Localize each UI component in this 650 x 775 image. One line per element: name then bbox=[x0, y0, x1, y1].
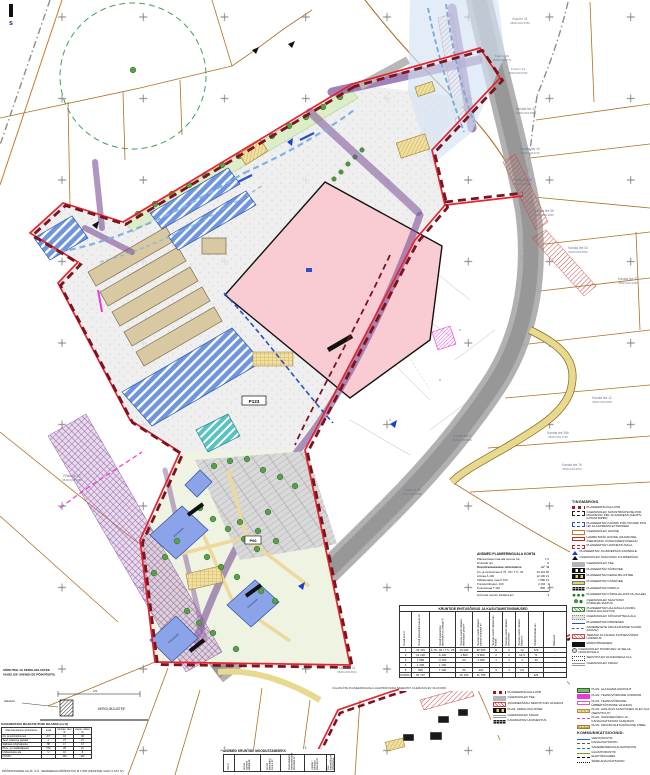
legend-item: OLEMASOLEV PUURKAEV JA SELLE HOOLDUSALA bbox=[572, 648, 650, 655]
yzebra-swatch-icon bbox=[572, 574, 585, 579]
table-row: KOKKU56 73715 10041 755226 bbox=[400, 673, 567, 678]
table-cell bbox=[544, 673, 567, 678]
legend-item-label: PLANEERITAV SÕIDUTEE bbox=[587, 568, 623, 571]
bwave-swatch-icon bbox=[572, 628, 585, 630]
svg-text:35201:004:0013: 35201:004:0013 bbox=[562, 467, 582, 471]
lv-swatch-icon bbox=[577, 739, 590, 740]
legend-item-label: MÜRATÕKKESEIN bbox=[587, 642, 613, 645]
yzebra-swatch-icon bbox=[493, 708, 506, 713]
svg-text:35201:004:0025: 35201:004:0025 bbox=[534, 213, 554, 217]
legend-items-2: PLAN. ALAJAAMA ASUKOHTPLAN. TEHNOVÕRKUDE… bbox=[575, 688, 650, 729]
legend-item: SADEMEVEEKANALISATSIOON bbox=[577, 746, 650, 749]
legend-item-label: PLAN. KRUNDI EHITUSÕIGUSE TABEL bbox=[592, 724, 647, 727]
svg-text:35201:004:0065: 35201:004:0065 bbox=[592, 400, 612, 404]
legend-item: OLEMASOLEV KÕVAKATTEGA ALA bbox=[572, 615, 650, 620]
legend-item: OLEMASOLEV SÄILITATAV KÕRGHALJASTUS bbox=[572, 599, 650, 606]
gbar-swatch-icon bbox=[493, 696, 506, 701]
legend-item-label: PLANEERITAV KERGLIIKLUSTEE bbox=[587, 574, 634, 577]
legend-item-label: OLEMASOLEV KRAAV bbox=[508, 714, 539, 717]
svg-text:35201:004:0054: 35201:004:0054 bbox=[452, 438, 472, 442]
communications-items: VEETORUSTIKKANALISATSIOONSADEMEVEEKANALI… bbox=[575, 737, 650, 764]
mrect-swatch-icon bbox=[577, 694, 590, 699]
legend-item-label: PLANEERINGUALA PIIR bbox=[587, 506, 621, 509]
table-cell: Tootmismaa T 100 bbox=[477, 586, 534, 590]
gbar-swatch-icon bbox=[572, 562, 585, 567]
dotr-swatch-icon bbox=[572, 656, 585, 661]
legend-item: OLEMASOLEV HOONE bbox=[572, 530, 650, 535]
svg-text:35201:001:0790: 35201:001:0790 bbox=[510, 21, 530, 25]
legend-item: SADEMEVETE ÄRAJUHTIMISE SUUND (KRAAV) bbox=[572, 626, 650, 633]
rrect-swatch-icon bbox=[572, 537, 585, 542]
svg-text:35201:004:0695: 35201:004:0695 bbox=[516, 111, 536, 115]
legend-item-label: PLAN. ÜHISVEEVÄRGI JA -KANALISATSIOONI Ü… bbox=[592, 716, 650, 723]
balance-title: KAVANDATAVA MAAKASUTUSE BILANSS (ca %) bbox=[1, 722, 152, 726]
legend-item-label: PLANEERITAV PIIRDEAED bbox=[587, 621, 624, 624]
summary-note: Korruste suurim lubatud arv3 bbox=[477, 591, 549, 597]
svg-text:Kanala tee 36: Kanala tee 36 bbox=[534, 209, 554, 213]
table-cell: 15 100 bbox=[456, 673, 473, 678]
mini-legend-panel: TINGMÄRGID PLANEERINGUALA PIIROLEMASOLEV… bbox=[491, 685, 565, 735]
legend-item: PLANEERINGUALA PIIR bbox=[493, 691, 565, 695]
svg-text:Kanala tee 42: Kanala tee 42 bbox=[516, 107, 536, 111]
legend-item: LAMMUTATAV HOONE (VAJADUSEL ASENDATAV UU… bbox=[572, 536, 650, 543]
legend-item-label: PLAN. TEHNOVÕRKUDE KORIDOR bbox=[592, 694, 642, 697]
svg-text:35201:001:0771: 35201:001:0771 bbox=[493, 58, 512, 62]
lk-swatch-icon bbox=[577, 743, 590, 744]
svg-text:35201:004:0640: 35201:004:0640 bbox=[568, 250, 588, 254]
legend-item-label: PLANEERITAV PARKLA bbox=[587, 587, 620, 590]
legend-item-label: OLEMASOLEV SÄILITATAV JUURDEPÄÄS bbox=[580, 556, 638, 559]
footer-note: MÕÕDISTAMISE ALUS: O.Ü. GEODEESIA MÕÕDIS… bbox=[2, 769, 124, 773]
table-cell: Ä 75...95 / T 5...25 bbox=[430, 648, 456, 653]
legend-item: PLANEERITAV HALJASALA (MURU, MADALHALJAS… bbox=[572, 607, 650, 614]
svg-text:Kanala tee 3: Kanala tee 3 bbox=[453, 434, 471, 438]
table-cell: 100 bbox=[74, 754, 92, 758]
ls-swatch-icon bbox=[577, 762, 590, 763]
table-cell bbox=[503, 673, 516, 678]
table-row: KOKKU100100 bbox=[2, 754, 92, 758]
building-rights-table-panel: KRUNTIDE EHITUSÕIGUS JA KASUTAMISTINGIMU… bbox=[399, 605, 567, 691]
legend-item-label: OLEMASOLEV KRAAV bbox=[587, 662, 618, 665]
gear-swatch-icon bbox=[572, 648, 577, 653]
legend-item: TEEMAA JA TÄNAVA KAITSEVÖÖNDI LAIENDUS bbox=[572, 634, 650, 641]
table-cell: KOKKU bbox=[400, 673, 412, 678]
pgrid-swatch-icon bbox=[493, 720, 506, 725]
redbr-swatch-icon bbox=[493, 691, 506, 695]
table-cell: KOKKU bbox=[2, 754, 42, 758]
legend-item-label: LAMMUTATAV HOONE (VAJADUSEL ASENDATAV UU… bbox=[587, 536, 650, 543]
svg-text:Kuuli tn 46: Kuuli tn 46 bbox=[495, 54, 510, 58]
legend-item: PLAN. AVALIKUS KASUTUSES OLEV ALA (SERVI… bbox=[577, 708, 650, 715]
svg-text:35201:004:1350: 35201:004:1350 bbox=[618, 281, 638, 285]
legend-item: MÜRATÕKKESEIN bbox=[572, 642, 650, 647]
svg-text:35201:004:0950: 35201:004:0950 bbox=[402, 492, 422, 496]
legend-item: SERVITUUDI VAJADUSEGA ALA bbox=[572, 656, 650, 661]
legend-item-label: SADEMEVEEKANALISATSIOON bbox=[592, 746, 637, 749]
detail-plan-sheet: s SÕIDUTEE JA KERGLIIKLUSTEE VAHELISE ÜH… bbox=[0, 0, 650, 775]
svg-text:P66: P66 bbox=[249, 538, 257, 543]
svg-text:Laane tn 24: Laane tn 24 bbox=[404, 488, 421, 492]
trees-swatch-icon bbox=[572, 593, 585, 598]
legend-item: OLEMASOLEV SÄILITATAV JUURDEPÄÄS bbox=[572, 556, 650, 560]
mini-legend-items: PLANEERINGUALA PIIROLEMASOLEV TEEJUURDEP… bbox=[491, 691, 565, 725]
building-rights-table: Krundi pos nr Krundi planeeritud suurus … bbox=[399, 611, 567, 678]
legend-item: PLANEERITAV JUURDEPÄÄS KRUNDILE bbox=[572, 550, 650, 554]
legend-item: KAVANDATAV HOONESTUS bbox=[493, 719, 565, 724]
legend-item: PLAN. KRUNDI EHITUSÕIGUSE TABEL bbox=[577, 724, 650, 729]
legend-item-label: OLEMASOLEV KÕVAKATTEGA ALA bbox=[587, 615, 636, 618]
kbar-swatch-icon bbox=[572, 642, 585, 647]
legend-item: PLANEERITAV SÕIDUTEE bbox=[572, 568, 650, 573]
legend-item: PLANEERITAV HOONESTUSALA bbox=[572, 544, 650, 549]
legend-item-label: PLANEERITAV KÕRGHALJASTUS (ALLEE) bbox=[587, 593, 646, 596]
plot-formation-title: ANDMED KRUNTIDE MOODUSTAMISEKS bbox=[223, 749, 335, 753]
building-rights-mini-table bbox=[253, 352, 293, 366]
legend-title: TINGMÄRGID bbox=[572, 500, 650, 504]
svg-text:35201:004:1280: 35201:004:1280 bbox=[62, 478, 82, 482]
legend-item: PLANEERINGUALA PIIR bbox=[572, 506, 650, 510]
svg-text:Kuuli tn 44: Kuuli tn 44 bbox=[511, 67, 526, 71]
legend-item-label: OLEMASOLEV KATASTRIÜKSUSE PIIR, MUUDETAV… bbox=[587, 511, 650, 521]
orect-swatch-icon bbox=[572, 530, 585, 535]
legend-item: PLANEERITAV KRUNDI PIIR, KRUNDI POS NR J… bbox=[572, 522, 650, 529]
legend-item-label: PLANEERITAV HALJASALA (MURU, MADALHALJAS… bbox=[587, 607, 650, 614]
legend-panel-2: PLAN. ALAJAAMA ASUKOHTPLAN. TEHNOVÕRKUDE… bbox=[553, 688, 650, 773]
svg-text:P123: P123 bbox=[249, 399, 260, 404]
tgrid-swatch-icon bbox=[577, 725, 590, 730]
mdash-swatch-icon bbox=[577, 718, 590, 719]
balance-table: Maa kasutamise sihtotstarve kood olemas-… bbox=[1, 727, 92, 759]
table-cell: 226 bbox=[529, 673, 544, 678]
legend-item-label: OLEMASOLEV HOONE bbox=[587, 530, 619, 533]
legend-item: PLANEERITAV KÕNNITEE bbox=[572, 580, 650, 585]
table-cell bbox=[430, 673, 456, 678]
legend-item-label: PLANEERITAV KÕNNITEE bbox=[587, 580, 623, 583]
rdash-swatch-icon bbox=[572, 545, 585, 550]
svg-text:Kanala tee 34: Kanala tee 34 bbox=[568, 246, 588, 250]
summary-subheader: Krundi kasutamise sihtotstarvem² % bbox=[477, 565, 549, 569]
pout-swatch-icon bbox=[577, 701, 590, 706]
corner-mark: s bbox=[9, 4, 13, 27]
legend-item-label: PLAN. KERGLIIKLUSTEE bbox=[508, 708, 543, 711]
legend-item-label: KAVANDATAV HOONESTUS bbox=[508, 719, 547, 722]
svg-text:35201:004:0710: 35201:004:0710 bbox=[520, 151, 540, 155]
ybar-swatch-icon bbox=[572, 581, 585, 586]
rhatch-swatch-icon bbox=[572, 634, 585, 639]
legend-item-label: OLEMASOLEV TEE bbox=[508, 696, 535, 699]
plan-summary-panel: ANDMED PLANEERINGUALA KOHTA Planeeritava… bbox=[477, 552, 549, 608]
legend-item: OLEMASOLEV TEE bbox=[493, 696, 565, 701]
legend-item: PLAN. TEHNOVÕRKUDE ÜMBERTÕSTMISE VAJADUS bbox=[577, 700, 650, 707]
btri-swatch-icon bbox=[572, 551, 578, 555]
svg-text:s: s bbox=[9, 20, 13, 27]
svg-text:Kanala tee 40: Kanala tee 40 bbox=[520, 147, 540, 151]
lel-swatch-icon bbox=[577, 757, 590, 758]
legend-item-label: SIDEKANALISATSIOON bbox=[592, 760, 625, 763]
table-header-row: Maa kasutamise sihtotstarve kood olemas-… bbox=[2, 727, 92, 734]
legend-item: PLAN. KERGLIIKLUSTEE bbox=[493, 708, 565, 713]
gpair-swatch-icon bbox=[493, 715, 506, 718]
legend-item: PLAN. ÜHISVEEVÄRGI JA -KANALISATSIOONI Ü… bbox=[577, 716, 650, 723]
legend-item: PLANEERITAV PARKLA bbox=[572, 587, 650, 592]
table-cell: 56 737 bbox=[412, 673, 430, 678]
legend-item: PLANEERITAV PIIRDEAED bbox=[572, 621, 650, 624]
table-cell: 2 bbox=[545, 586, 549, 590]
table-cell bbox=[42, 754, 56, 758]
pgrid-swatch-icon bbox=[572, 587, 585, 592]
svg-text:Kanala tee 7b: Kanala tee 7b bbox=[562, 463, 582, 467]
bdash-swatch-icon bbox=[572, 511, 585, 516]
table-row: Tootmismaa T 1008952 bbox=[477, 586, 549, 590]
legend-item: OLEMASOLEV KRAAV bbox=[572, 662, 650, 666]
svg-text:Kanala tee 12: Kanala tee 12 bbox=[592, 396, 612, 400]
svg-text:Piilaku tn 22: Piilaku tn 22 bbox=[63, 474, 81, 478]
legend-item: OLEMASOLEV TEE bbox=[572, 562, 650, 567]
table-cell: 895 bbox=[534, 586, 545, 590]
svg-text:Kanala tee 38: Kanala tee 38 bbox=[512, 178, 532, 182]
summary-title: ANDMED PLANEERINGUALA KOHTA bbox=[477, 552, 549, 556]
legend-item-label: PLANEERITAV HOONESTUSALA bbox=[587, 544, 633, 547]
zebra-swatch-icon bbox=[572, 568, 585, 573]
table-header-row: Krundi pos nr Krundi planeeritud suurus … bbox=[400, 612, 567, 648]
lg-swatch-icon bbox=[577, 753, 590, 754]
legend-item-label: PLAN. AVALIKUS KASUTUSES OLEV ALA (SERVI… bbox=[592, 708, 650, 715]
svg-text:Kuuli tn 41: Kuuli tn 41 bbox=[512, 17, 527, 21]
communications-title: KOMMUNIKATSIOONID: bbox=[577, 731, 650, 735]
grect-swatch-icon bbox=[577, 688, 590, 693]
svg-text:Laane tn 11: Laane tn 11 bbox=[339, 666, 356, 670]
svg-text:Kanala tee 26b: Kanala tee 26b bbox=[547, 431, 569, 435]
lsv-swatch-icon bbox=[577, 748, 590, 749]
svg-text:Kanala tee 32: Kanala tee 32 bbox=[618, 277, 638, 281]
legend-item-label: SADEMEVETE ÄRAJUHTIMISE SUUND (KRAAV) bbox=[587, 626, 650, 633]
plot-formation-table: Pos nr Krundi aadressi ettepanek Krundi … bbox=[223, 754, 335, 772]
table-cell: 41 755 bbox=[473, 673, 490, 678]
legend-item: OLEMASOLEV KATASTRIÜKSUSE PIIR, MUUDETAV… bbox=[572, 511, 650, 521]
legend-item-label: PLAN. TEHNOVÕRKUDE ÜMBERTÕSTMISE VAJADUS bbox=[592, 700, 650, 707]
svg-text:35201:004:1760: 35201:004:1760 bbox=[548, 435, 568, 439]
summary-uses-table: Äri- ja tootmismaa Ä 75...95 / T 5...253… bbox=[477, 570, 549, 590]
ghatch-swatch-icon bbox=[572, 607, 585, 612]
table-cell: 100 bbox=[56, 754, 74, 758]
legend-item-label: SERVITUUDI VAJADUSEGA ALA bbox=[587, 656, 632, 659]
legend-item: SIDEKANALISATSIOON bbox=[577, 760, 650, 763]
table-cell bbox=[490, 673, 503, 678]
legend-item-label: OLEMASOLEV SÄILITATAV KÕRGHALJASTUS bbox=[587, 599, 650, 606]
table-cell bbox=[516, 673, 529, 678]
legend-items: PLANEERINGUALA PIIROLEMASOLEV KATASTRIÜK… bbox=[570, 506, 650, 666]
legend-item: JUURDEPÄÄSU SERVITUUDI VAJADUS bbox=[493, 702, 565, 707]
table-header-row: Pos nr Krundi aadressi ettepanek Krundi … bbox=[224, 754, 335, 771]
bludash-swatch-icon bbox=[572, 522, 585, 527]
redbr-swatch-icon bbox=[572, 506, 585, 510]
tclu-swatch-icon bbox=[572, 599, 585, 604]
legend-item-label: PLAN. ALAJAAMA ASUKOHT bbox=[592, 688, 632, 691]
thatch-swatch-icon bbox=[577, 709, 590, 714]
ktri-swatch-icon bbox=[572, 556, 578, 560]
land-use-balance-panel: KAVANDATAVA MAAKASUTUSE BILANSS (ca %) M… bbox=[0, 660, 152, 775]
svg-text:35201:004:0001: 35201:004:0001 bbox=[337, 670, 357, 674]
gpair-swatch-icon bbox=[572, 663, 585, 666]
legend-item-label: JUURDEPÄÄSU SERVITUUDI VAJADUS bbox=[508, 702, 564, 705]
legend-item-label: PLANEERITAV KRUNDI PIIR, KRUNDI POS NR J… bbox=[587, 522, 650, 529]
legend-item-label: OLEMASOLEV TEE bbox=[587, 562, 614, 565]
gdots-swatch-icon bbox=[572, 615, 585, 620]
legend-item: PLANEERITAV KÕRGHALJASTUS (ALLEE) bbox=[572, 593, 650, 598]
fragment-caption: VÄLJAVÕTE PLANEERINGUALA LÄHIPIIRKONNA S… bbox=[332, 686, 446, 690]
bline-swatch-icon bbox=[572, 623, 585, 625]
svg-text:35201:004:1550: 35201:004:1550 bbox=[512, 182, 532, 186]
legend-item-label: OLEMASOLEV PUURKAEV JA SELLE HOOLDUSALA bbox=[579, 648, 650, 655]
legend-item-label: PLANEERITAV JUURDEPÄÄS KRUNDILE bbox=[580, 550, 637, 553]
legend-item-label: TEEMAA JA TÄNAVA KAITSEVÖÖNDI LAIENDUS bbox=[587, 634, 650, 641]
rhatch-swatch-icon bbox=[493, 702, 506, 707]
svg-text:35201:001:0780: 35201:001:0780 bbox=[509, 71, 528, 75]
plot-formation-panel: ANDMED KRUNTIDE MOODUSTAMISEKS Pos nr Kr… bbox=[223, 749, 335, 775]
